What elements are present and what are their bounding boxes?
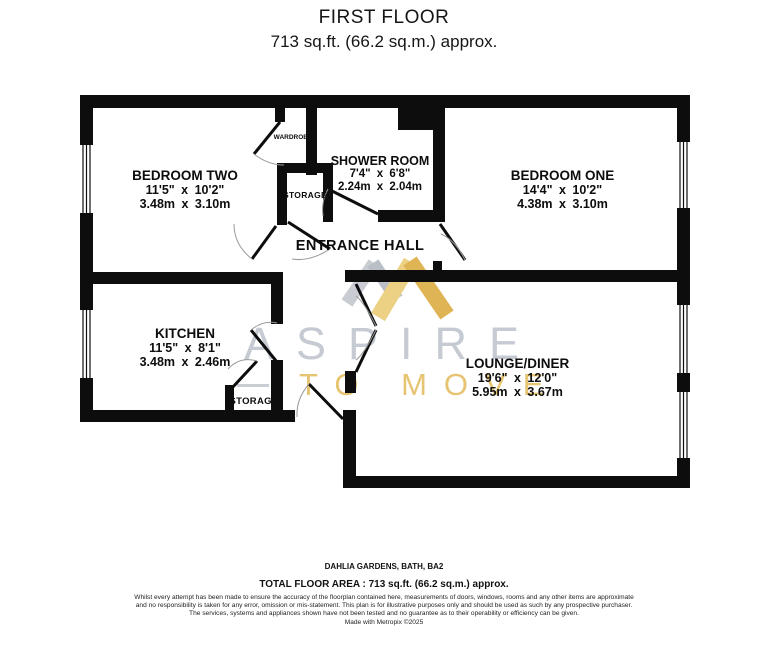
room-dims-imperial: 19'6" x 12'0": [410, 371, 625, 385]
floorplan-page: FIRST FLOOR 713 sq.ft. (66.2 sq.m.) appr…: [0, 0, 768, 660]
plan-footer: DAHLIA GARDENS, BATH, BA2 TOTAL FLOOR AR…: [0, 562, 768, 626]
room-name: STORAGE: [230, 396, 279, 407]
total-floor-area: TOTAL FLOOR AREA : 713 sq.ft. (66.2 sq.m…: [0, 579, 768, 590]
room-dims-metric: 2.24m x 2.04m: [322, 181, 438, 194]
room-dims-metric: 5.95m x 3.67m: [410, 385, 625, 399]
room-name: BEDROOM TWO: [85, 168, 285, 183]
room-dims-imperial: 14'4" x 10'2": [455, 183, 670, 197]
room-label-storage-hall: STORAGE: [281, 191, 329, 201]
room-name: KITCHEN: [85, 326, 285, 341]
room-dims-metric: 3.48m x 2.46m: [85, 355, 285, 369]
room-dims-metric: 3.48m x 3.10m: [85, 197, 285, 211]
room-label-bedroom-one: BEDROOM ONE 14'4" x 10'2" 4.38m x 3.10m: [455, 168, 670, 212]
room-label-wardrobe: WARDROBE: [271, 134, 315, 141]
room-name: LOUNGE/DINER: [410, 356, 625, 371]
room-label-shower-room: SHOWER ROOM 7'4" x 6'8" 2.24m x 2.04m: [322, 154, 438, 194]
room-label-lounge-diner: LOUNGE/DINER 19'6" x 12'0" 5.95m x 3.67m: [410, 356, 625, 400]
room-dims-imperial: 7'4" x 6'8": [322, 168, 438, 181]
room-name: STORAGE: [283, 190, 327, 200]
room-label-entrance-hall: ENTRANCE HALL: [270, 238, 450, 254]
room-dims-metric: 4.38m x 3.10m: [455, 197, 670, 211]
room-dims-imperial: 11'5" x 8'1": [85, 341, 285, 355]
room-name: BEDROOM ONE: [455, 168, 670, 183]
room-label-bedroom-two: BEDROOM TWO 11'5" x 10'2" 3.48m x 3.10m: [85, 168, 285, 212]
room-name: SHOWER ROOM: [322, 154, 438, 168]
room-name: WARDROBE: [274, 134, 313, 141]
floor-name: FIRST FLOOR: [0, 7, 768, 29]
room-label-storage-kitchen: STORAGE: [228, 397, 280, 408]
property-address: DAHLIA GARDENS, BATH, BA2: [0, 562, 768, 571]
room-name: ENTRANCE HALL: [296, 238, 424, 254]
plan-title: FIRST FLOOR 713 sq.ft. (66.2 sq.m.) appr…: [0, 7, 768, 52]
room-dims-imperial: 11'5" x 10'2": [85, 183, 285, 197]
metropix-credit: Made with Metropix ©2025: [0, 619, 768, 626]
room-label-kitchen: KITCHEN 11'5" x 8'1" 3.48m x 2.46m: [85, 326, 285, 370]
floor-area: 713 sq.ft. (66.2 sq.m.) approx.: [0, 32, 768, 52]
disclaimer-text: Whilst every attempt has been made to en…: [134, 594, 634, 618]
